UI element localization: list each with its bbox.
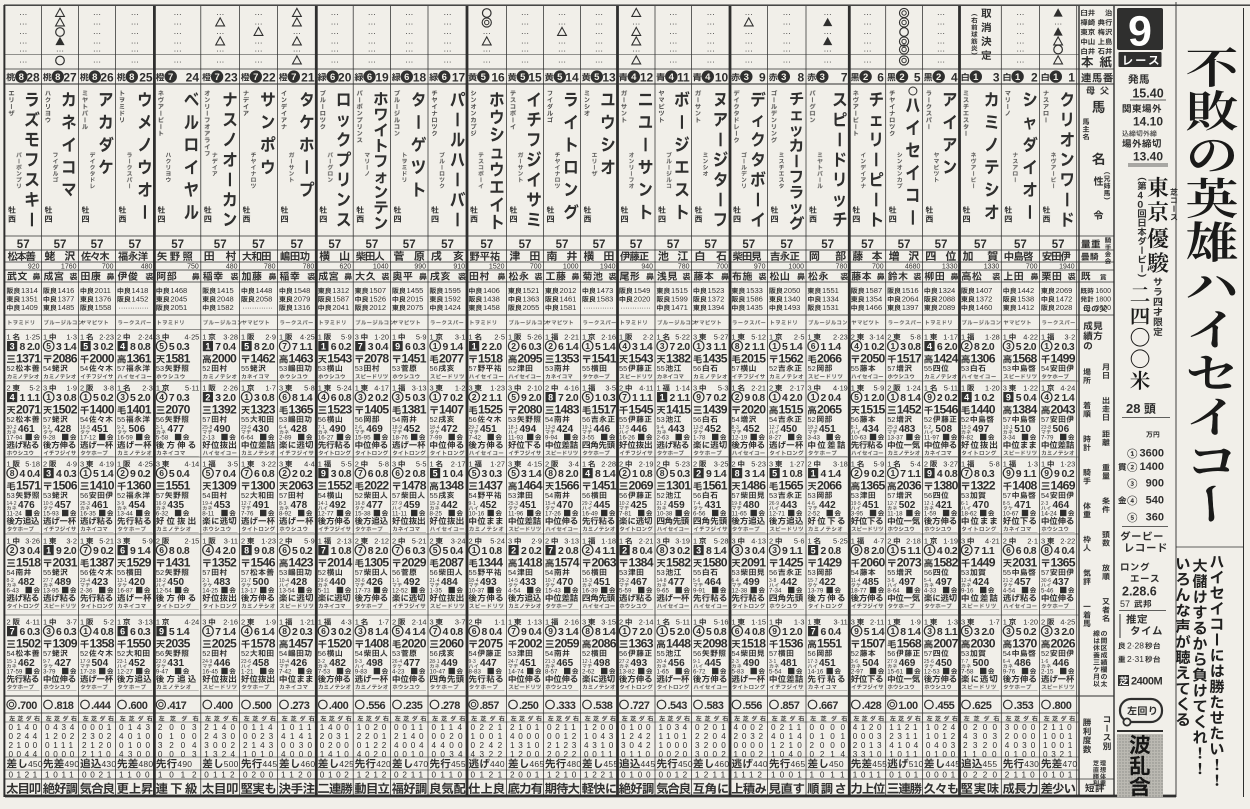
svg-text:…: … (483, 55, 492, 65)
svg-text:13-82: 13-82 (619, 668, 635, 675)
svg-text:16-45: 16-45 (202, 668, 218, 675)
svg-text:4·24: 4·24 (185, 618, 200, 627)
svg-text:8: 8 (798, 71, 805, 85)
svg-text:…: … (823, 44, 832, 54)
svg-text:.500: .500 (252, 700, 272, 712)
svg-text:1571: 1571 (16, 479, 41, 493)
svg-text:7: 7 (214, 72, 219, 83)
svg-text:16-59: 16-59 (117, 434, 133, 441)
svg-text:10·7: 10·7 (545, 578, 555, 584)
svg-text:52: 52 (80, 649, 88, 658)
svg-text:486: 486 (1014, 658, 1031, 669)
svg-text:5·6: 5·6 (794, 537, 805, 546)
svg-text:2000: 2000 (90, 352, 115, 366)
svg-text:…: … (368, 55, 377, 65)
svg-text:1518: 1518 (478, 352, 503, 366)
svg-text:1429: 1429 (817, 556, 842, 570)
svg-text:6: 6 (159, 545, 164, 555)
svg-text:1·20: 1·20 (374, 333, 389, 342)
svg-text:6: 6 (472, 626, 477, 636)
svg-text:2·18: 2·18 (906, 537, 921, 546)
svg-text:…: … (331, 55, 340, 65)
svg-text:54: 54 (508, 568, 516, 577)
svg-text:1800: 1800 (1095, 297, 1111, 304)
svg-text:…: … (443, 7, 452, 17)
svg-text:53: 53 (732, 568, 740, 577)
svg-text:…: … (823, 26, 832, 36)
svg-text:5·11: 5·11 (185, 384, 199, 393)
svg-text:9: 9 (1044, 468, 1049, 478)
svg-text:55: 55 (924, 364, 932, 373)
svg-text:53: 53 (657, 568, 665, 577)
svg-text:53: 53 (279, 415, 287, 424)
svg-text:57: 57 (43, 649, 51, 658)
svg-text:57: 57 (403, 239, 416, 251)
svg-text:700: 700 (716, 264, 728, 271)
svg-text:·············: ············· (243, 305, 273, 312)
svg-text:13-95: 13-95 (43, 587, 59, 594)
svg-text:22·9: 22·9 (156, 659, 166, 665)
svg-text:1322: 1322 (971, 479, 996, 493)
svg-text:5: 5 (395, 626, 400, 636)
svg-text:6-43: 6-43 (7, 587, 20, 594)
svg-text:2066: 2066 (817, 352, 842, 366)
svg-text:…: … (937, 17, 946, 27)
svg-text:…: … (254, 17, 263, 27)
svg-text:437: 437 (1053, 577, 1070, 588)
svg-text:8: 8 (19, 72, 24, 83)
svg-text:2031: 2031 (320, 732, 353, 741)
svg-text:1365: 1365 (1051, 556, 1076, 570)
svg-text:4303: 4303 (963, 732, 1002, 741)
svg-text:1: 1 (244, 392, 249, 402)
svg-text:1: 1 (582, 460, 586, 469)
svg-text:21·7: 21·7 (241, 578, 251, 584)
svg-text:1·23: 1·23 (1060, 460, 1075, 469)
svg-text:0214: 0214 (810, 750, 851, 759)
svg-text:9: 9 (854, 626, 859, 636)
svg-text:1-78: 1-78 (693, 434, 706, 441)
svg-text:…: … (521, 44, 530, 54)
svg-text:…: … (558, 7, 567, 17)
svg-text:25·6: 25·6 (924, 659, 934, 665)
svg-text:1011: 1011 (889, 750, 921, 759)
svg-text:3·27: 3·27 (943, 460, 958, 469)
svg-text:446: 446 (594, 424, 611, 435)
svg-text:2: 2 (622, 545, 627, 555)
svg-text:1·17: 1·17 (943, 333, 958, 342)
svg-text:53: 53 (545, 364, 553, 373)
svg-text:1: 1 (156, 618, 160, 627)
svg-text:5: 5 (964, 626, 969, 636)
svg-text:455: 455 (451, 759, 466, 769)
svg-text:…: … (707, 17, 716, 27)
svg-text:4: 4 (696, 626, 701, 636)
svg-text:3: 3 (772, 545, 777, 555)
svg-text:500: 500 (224, 759, 239, 769)
svg-text:0010: 0010 (394, 750, 427, 759)
svg-text:940: 940 (641, 264, 653, 271)
svg-text:4·25: 4·25 (1060, 618, 1075, 627)
svg-text:…: … (783, 7, 792, 17)
svg-text:700: 700 (1026, 264, 1038, 271)
svg-text:780: 780 (303, 264, 315, 271)
svg-text:3-79: 3-79 (43, 668, 56, 675)
svg-text:56: 56 (619, 649, 627, 658)
svg-text:2·17: 2·17 (451, 460, 466, 469)
svg-text:0200: 0200 (963, 723, 1002, 732)
svg-text:5·8: 5·8 (378, 460, 389, 469)
svg-text:4: 4 (854, 341, 859, 351)
svg-text:…: … (173, 17, 182, 27)
svg-text:497: 497 (899, 577, 916, 588)
svg-text:57: 57 (156, 491, 164, 500)
svg-text:.235: .235 (403, 700, 423, 712)
svg-text:56: 56 (693, 491, 701, 500)
svg-text:57: 57 (328, 239, 341, 251)
svg-text:57: 57 (252, 239, 265, 251)
svg-text:7-79: 7-79 (1041, 434, 1054, 441)
svg-text:1: 1 (660, 626, 665, 636)
svg-text:2·16: 2·16 (564, 618, 579, 627)
svg-text:53: 53 (619, 568, 627, 577)
svg-text:1361: 1361 (127, 352, 152, 366)
svg-text:…: … (595, 44, 604, 54)
svg-text:2-13: 2-13 (202, 434, 215, 441)
svg-text:7: 7 (10, 626, 15, 636)
svg-text:3: 3 (769, 460, 773, 469)
svg-text:2·16: 2·16 (601, 333, 616, 342)
svg-text:7: 7 (841, 71, 848, 85)
svg-text:4: 4 (669, 72, 675, 83)
svg-text:13-54: 13-54 (279, 587, 295, 594)
svg-text:13-17: 13-17 (241, 587, 257, 594)
svg-text:5·4: 5·4 (910, 460, 921, 469)
svg-text:1435: 1435 (703, 352, 728, 366)
svg-text:445: 445 (641, 759, 656, 769)
svg-text:10: 10 (715, 71, 729, 85)
svg-text:15·4: 15·4 (545, 501, 555, 507)
svg-text:452: 452 (705, 424, 722, 435)
svg-text:30·6: 30·6 (1041, 578, 1051, 584)
svg-text:2·17: 2·17 (790, 384, 805, 393)
svg-text:56: 56 (469, 415, 477, 424)
svg-text:…: … (405, 17, 414, 27)
svg-text:1449: 1449 (971, 556, 996, 570)
svg-text:5·21: 5·21 (99, 537, 114, 546)
svg-text:1410: 1410 (90, 479, 115, 493)
svg-text:1: 1 (206, 626, 211, 636)
svg-text:54: 54 (392, 415, 400, 424)
svg-text:12: 12 (640, 71, 654, 85)
svg-text:0044: 0044 (9, 750, 41, 759)
svg-text:…: … (745, 7, 754, 17)
svg-text:9·3: 9·3 (355, 659, 362, 665)
svg-text:56: 56 (392, 568, 400, 577)
svg-text:8-27: 8-27 (769, 434, 782, 441)
svg-text:6: 6 (159, 468, 164, 478)
svg-text:2-36: 2-36 (80, 587, 93, 594)
svg-text:6·4: 6·4 (279, 425, 286, 431)
svg-text:5·3: 5·3 (718, 384, 729, 393)
svg-text:1435: 1435 (746, 303, 763, 312)
svg-text:9-91: 9-91 (693, 587, 706, 594)
svg-text:…: … (173, 55, 182, 65)
svg-text:8-11: 8-11 (202, 510, 214, 517)
svg-text:8-92: 8-92 (279, 510, 292, 517)
svg-text:53: 53 (1003, 364, 1011, 373)
svg-text:…: … (863, 17, 872, 27)
svg-text:2-89: 2-89 (279, 434, 292, 441)
svg-text:5-83: 5-83 (732, 668, 745, 675)
svg-text:1940: 1940 (1059, 264, 1075, 271)
svg-text:0000: 0000 (45, 750, 78, 759)
svg-text:2·19: 2·19 (639, 460, 654, 469)
svg-text:2060: 2060 (860, 556, 885, 570)
svg-text:3·2: 3·2 (66, 537, 77, 546)
svg-text:4104: 4104 (889, 741, 922, 750)
svg-text:1400: 1400 (320, 723, 353, 732)
svg-text:990: 990 (414, 264, 426, 271)
svg-text:5: 5 (244, 341, 249, 351)
svg-text:19: 19 (375, 71, 389, 85)
svg-text:458: 458 (253, 658, 270, 669)
svg-text:52: 52 (156, 568, 164, 577)
svg-text:0102: 0102 (320, 770, 353, 779)
svg-text:8-25: 8-25 (430, 510, 443, 517)
svg-text:490: 490 (743, 658, 760, 669)
svg-text:53: 53 (769, 491, 777, 500)
svg-text:2143: 2143 (243, 741, 277, 750)
svg-text:12·1: 12·1 (924, 501, 934, 507)
svg-text:27·2: 27·2 (619, 659, 629, 665)
svg-text:8: 8 (660, 545, 665, 555)
svg-text:7-42: 7-42 (469, 434, 482, 441)
svg-text:540: 540 (1146, 495, 1164, 507)
svg-text:2: 2 (511, 341, 516, 351)
svg-text:1·20: 1·20 (1023, 618, 1038, 627)
svg-text:780: 780 (836, 264, 848, 271)
svg-text:469: 469 (899, 658, 916, 669)
svg-text:1: 1 (772, 392, 777, 402)
svg-text:0114: 0114 (243, 723, 277, 732)
svg-text:…: … (331, 7, 340, 17)
svg-text:1: 1 (83, 468, 88, 478)
svg-text:57: 57 (480, 239, 493, 251)
svg-text:477: 477 (167, 424, 184, 435)
svg-text:464: 464 (705, 577, 722, 588)
svg-text:2·24: 2·24 (138, 333, 153, 342)
svg-text:1371: 1371 (16, 352, 41, 366)
svg-text:10·4: 10·4 (279, 578, 289, 584)
svg-text:2311: 2311 (889, 732, 921, 741)
svg-text:2·15: 2·15 (185, 537, 200, 546)
svg-text:…: … (443, 17, 452, 27)
svg-text:1582: 1582 (933, 556, 958, 570)
svg-text:502: 502 (899, 500, 916, 511)
svg-text:57: 57 (117, 364, 125, 373)
svg-text:1581: 1581 (165, 352, 190, 366)
svg-text:8: 8 (1044, 545, 1049, 555)
svg-text:3: 3 (358, 626, 363, 636)
svg-text:3000: 3000 (1005, 723, 1040, 732)
svg-text:55: 55 (1003, 568, 1011, 577)
svg-text:6·1: 6·1 (961, 501, 968, 507)
svg-text:57: 57 (1120, 599, 1130, 609)
svg-text:4000: 4000 (510, 732, 543, 741)
svg-text:464: 464 (1053, 500, 1070, 511)
svg-text:5·9: 5·9 (874, 460, 885, 469)
svg-text:52: 52 (241, 649, 249, 658)
svg-text:2·12: 2·12 (374, 537, 389, 546)
svg-text:428: 428 (55, 424, 72, 435)
svg-text:…: … (405, 44, 414, 54)
svg-text:3-55: 3-55 (582, 434, 595, 441)
svg-text:3·1: 3·1 (156, 425, 163, 431)
svg-text:…: … (443, 26, 452, 36)
svg-text:54: 54 (1041, 491, 1049, 500)
svg-text:3·2: 3·2 (318, 659, 325, 665)
svg-text:27·9: 27·9 (392, 501, 402, 507)
svg-text:12-71: 12-71 (769, 510, 785, 517)
svg-text:0000: 0000 (810, 723, 851, 732)
svg-text:459: 459 (668, 500, 685, 511)
svg-text:5: 5 (585, 392, 590, 402)
svg-text:54: 54 (732, 649, 740, 658)
svg-text:14·8: 14·8 (657, 578, 667, 584)
svg-text:1·13: 1·13 (527, 618, 542, 627)
svg-text:1565: 1565 (779, 479, 804, 493)
svg-text:…: … (483, 26, 492, 36)
svg-text:0244: 0244 (9, 732, 41, 741)
svg-text:442: 442 (781, 577, 798, 588)
svg-text:57: 57 (469, 364, 477, 373)
svg-text:1001: 1001 (1043, 741, 1076, 750)
svg-text:…: … (368, 44, 377, 54)
svg-text:5·18: 5·18 (25, 460, 40, 469)
svg-text:1100: 1100 (119, 770, 154, 779)
svg-text:.625: .625 (972, 700, 992, 712)
svg-text:2065: 2065 (817, 403, 842, 417)
svg-text:56: 56 (318, 415, 326, 424)
svg-text:5·8: 5·8 (304, 384, 315, 393)
svg-text:3: 3 (660, 341, 665, 351)
svg-text:…: … (216, 44, 225, 54)
svg-text:15·5: 15·5 (961, 425, 971, 431)
svg-text:3·2: 3·2 (1065, 333, 1076, 342)
svg-text:0012: 0012 (659, 770, 691, 779)
svg-text:2: 2 (936, 72, 941, 83)
svg-text:52: 52 (318, 568, 326, 577)
svg-text:2123: 2123 (547, 741, 580, 750)
svg-text:2.28.6: 2.28.6 (1122, 585, 1157, 599)
svg-text:2035: 2035 (165, 637, 190, 651)
svg-text:2086: 2086 (592, 637, 617, 651)
svg-text:5·6: 5·6 (693, 578, 700, 584)
svg-text:6: 6 (811, 341, 816, 351)
svg-text:14-74: 14-74 (508, 668, 524, 675)
svg-text:0020: 0020 (432, 732, 467, 741)
svg-text:2: 2 (808, 460, 812, 469)
svg-text:27: 27 (63, 71, 77, 85)
svg-text:…: … (937, 7, 946, 17)
svg-text:456: 456 (668, 658, 685, 669)
svg-text:446: 446 (631, 424, 648, 435)
svg-text:56: 56 (693, 364, 701, 373)
svg-text:9: 9 (759, 71, 766, 85)
svg-text:3204: 3204 (158, 741, 203, 750)
svg-text:1561: 1561 (703, 479, 728, 493)
svg-text:3·8: 3·8 (769, 578, 776, 584)
svg-text:440: 440 (329, 577, 346, 588)
svg-text:1001: 1001 (771, 770, 806, 779)
svg-text:54: 54 (80, 415, 88, 424)
svg-text:3-43: 3-43 (808, 434, 821, 441)
svg-text:·············: ············· (621, 305, 651, 312)
svg-text:482: 482 (329, 658, 346, 669)
svg-text:5: 5 (854, 392, 859, 402)
svg-text:…: … (1016, 17, 1025, 27)
svg-text:14·5: 14·5 (508, 578, 518, 584)
svg-text:506: 506 (129, 424, 146, 435)
svg-text:…: … (669, 7, 678, 17)
svg-text:2: 2 (472, 392, 477, 402)
svg-text:53: 53 (355, 364, 363, 373)
svg-text:470: 470 (414, 759, 429, 769)
svg-text:1: 1 (433, 392, 438, 402)
svg-text:57: 57 (202, 568, 210, 577)
svg-text:9·4: 9·4 (657, 425, 664, 431)
svg-text:5·2: 5·2 (103, 618, 114, 627)
svg-text:0211: 0211 (771, 723, 805, 732)
svg-text:1: 1 (622, 626, 627, 636)
svg-text:57: 57 (630, 239, 643, 251)
svg-text:…: … (669, 17, 678, 27)
svg-text:3310: 3310 (853, 750, 885, 759)
svg-text:4: 4 (1044, 392, 1049, 402)
svg-text:472: 472 (441, 424, 458, 435)
svg-text:11·4: 11·4 (851, 578, 861, 584)
svg-text:1440: 1440 (971, 403, 996, 417)
svg-text:2000: 2000 (212, 352, 237, 366)
svg-text:7: 7 (244, 468, 249, 478)
svg-text:1200: 1200 (584, 723, 617, 732)
svg-text:…: … (669, 44, 678, 54)
svg-text:1545: 1545 (629, 403, 654, 417)
svg-text:4·6: 4·6 (808, 501, 815, 507)
svg-text:23: 23 (224, 71, 238, 85)
svg-text:1384: 1384 (1012, 403, 1037, 417)
svg-text:1552: 1552 (327, 479, 352, 493)
svg-text:8: 8 (129, 72, 134, 83)
svg-text:57: 57 (54, 239, 67, 251)
svg-text:1112: 1112 (734, 770, 766, 779)
svg-text:4·11: 4·11 (639, 384, 653, 393)
svg-text:1306: 1306 (971, 352, 996, 366)
svg-text:1·7: 1·7 (378, 618, 389, 627)
svg-text:…: … (368, 7, 377, 17)
svg-text:3·8: 3·8 (103, 384, 114, 393)
svg-text:12-52: 12-52 (392, 587, 408, 594)
svg-text:54: 54 (469, 649, 477, 658)
svg-text:2078: 2078 (364, 352, 389, 366)
svg-text:9: 9 (927, 392, 932, 402)
svg-text:1483: 1483 (555, 403, 580, 417)
svg-text:57: 57 (667, 239, 680, 251)
svg-text:2400M: 2400M (1131, 676, 1162, 688)
svg-text:480: 480 (743, 500, 760, 511)
svg-text:57: 57 (355, 568, 363, 577)
